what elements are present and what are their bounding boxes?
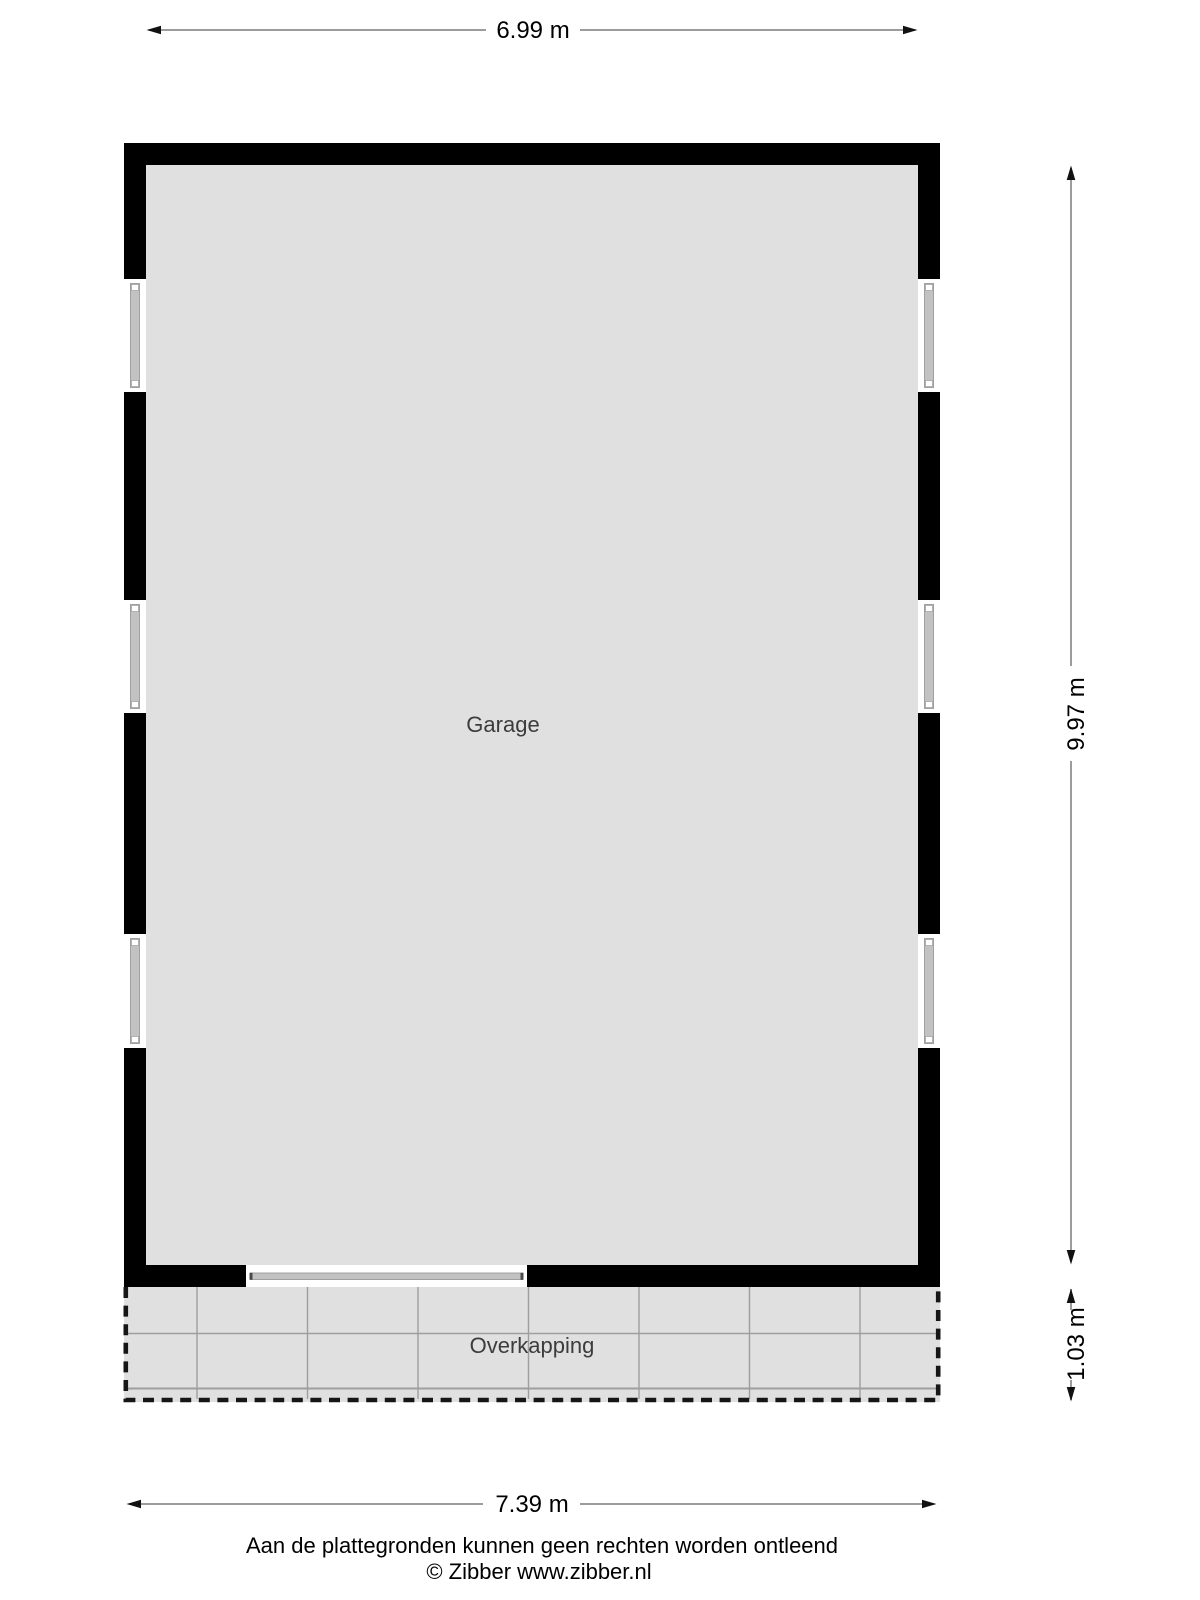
svg-text:9.97 m: 9.97 m	[1063, 677, 1090, 750]
svg-text:7.39 m: 7.39 m	[495, 1491, 568, 1518]
svg-text:6.99 m: 6.99 m	[496, 17, 569, 44]
svg-text:© Zibber www.zibber.nl: © Zibber www.zibber.nl	[426, 1559, 651, 1584]
svg-text:Aan de plattegronden kunnen ge: Aan de plattegronden kunnen geen rechten…	[246, 1533, 838, 1558]
svg-text:Overkapping: Overkapping	[470, 1333, 595, 1358]
svg-text:Garage: Garage	[466, 712, 539, 737]
svg-text:1.03 m: 1.03 m	[1063, 1307, 1090, 1380]
